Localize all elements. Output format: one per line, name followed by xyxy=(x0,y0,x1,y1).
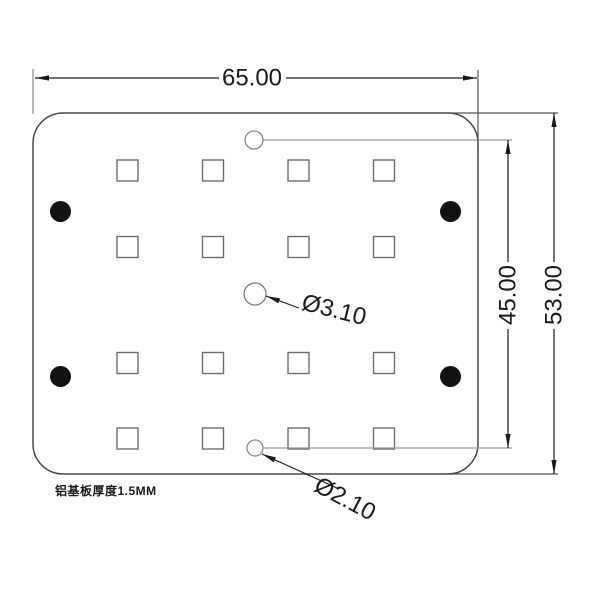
arrow-down-icon xyxy=(505,434,510,448)
center-hole xyxy=(244,283,266,305)
arrow-up-icon xyxy=(505,140,510,154)
bottom-hole-label: Ø2.10 xyxy=(310,472,380,527)
thickness-note: 铝基板厚度1.5MM xyxy=(55,483,157,498)
dim-height-outer-label: 53.00 xyxy=(541,265,568,325)
mounting-hole xyxy=(440,201,461,222)
drawing-svg: 65.00 53.00 45.00 Ø3.10 xyxy=(0,0,600,600)
top-hole xyxy=(245,131,263,149)
arrow-down-icon xyxy=(551,460,556,474)
arrow-up-icon xyxy=(551,113,556,127)
dim-height-inner-label: 45.00 xyxy=(495,265,522,325)
mounting-hole xyxy=(50,201,71,222)
mounting-hole xyxy=(50,366,71,387)
mounting-hole xyxy=(440,366,461,387)
cad-drawing: 65.00 53.00 45.00 Ø3.10 xyxy=(0,0,600,600)
bottom-hole xyxy=(247,440,263,456)
dim-width-label: 65.00 xyxy=(222,65,282,92)
arrow-left-icon xyxy=(35,75,49,80)
arrow-right-icon xyxy=(463,75,477,80)
dim-height-inner: 45.00 xyxy=(495,140,522,448)
